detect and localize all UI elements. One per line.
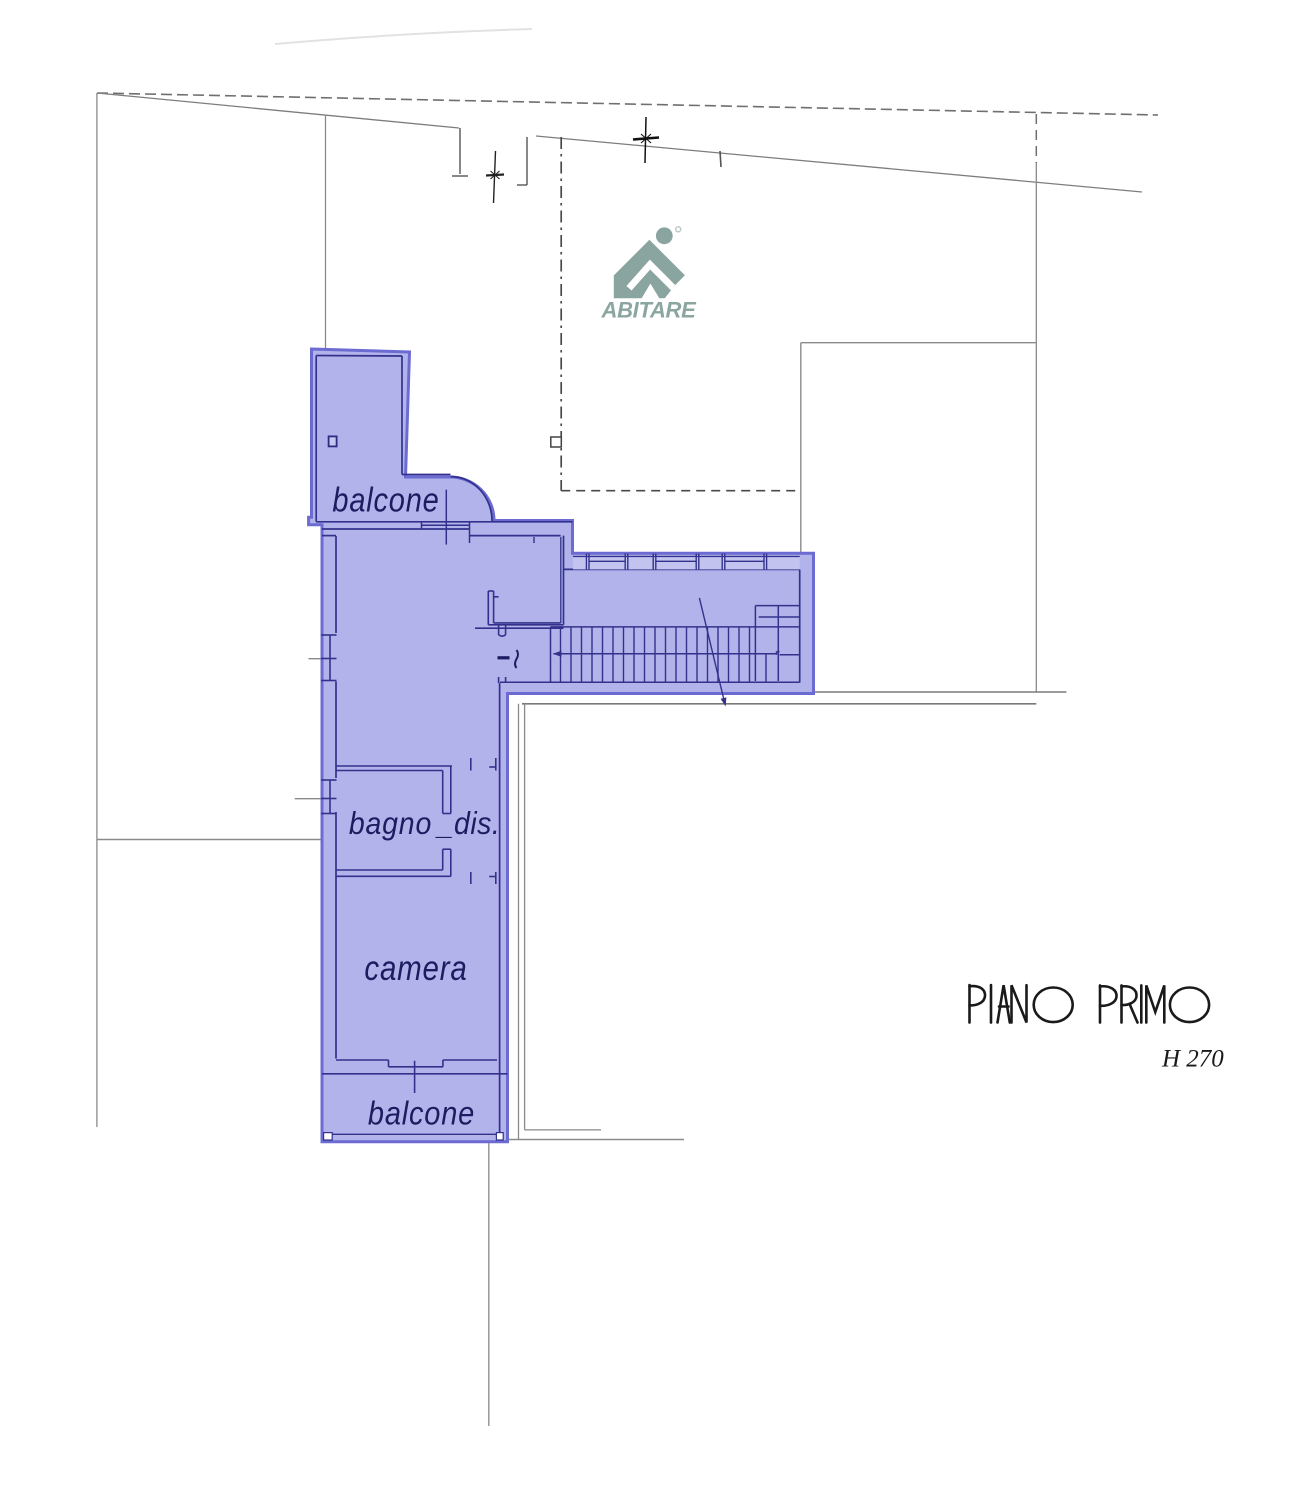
svg-text:camera: camera bbox=[364, 948, 467, 987]
svg-text:bagno: bagno bbox=[349, 807, 432, 842]
svg-text:balcone: balcone bbox=[368, 1095, 475, 1132]
svg-text:_dis.: _dis. bbox=[435, 807, 501, 842]
svg-text:H 270: H 270 bbox=[1161, 1045, 1224, 1072]
svg-text:ABITARE: ABITARE bbox=[601, 297, 698, 322]
svg-text:balcone: balcone bbox=[332, 480, 439, 519]
